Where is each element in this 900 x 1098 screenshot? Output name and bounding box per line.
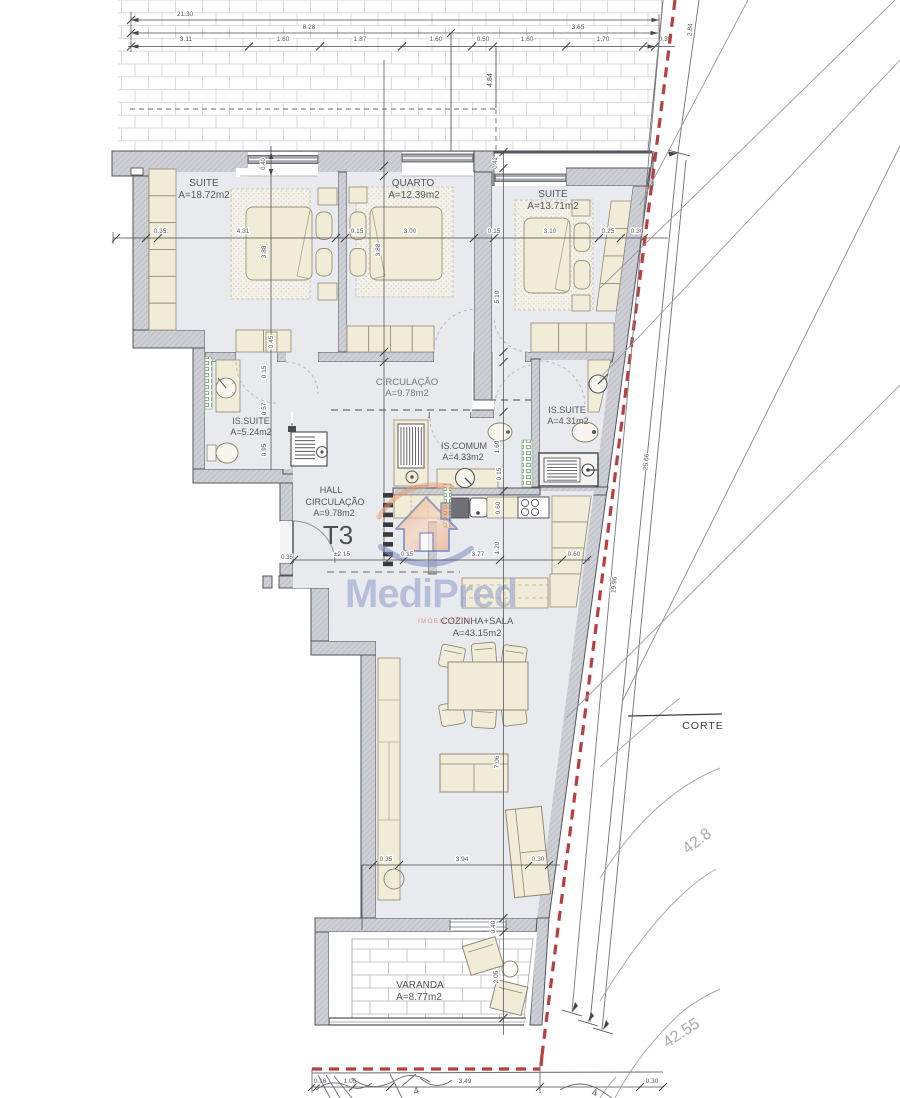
svg-text:1.60: 1.60 — [430, 36, 443, 43]
svg-text:IS.SUITE: IS.SUITE — [232, 416, 270, 426]
svg-text:VARANDA: VARANDA — [396, 980, 444, 991]
svg-text:CIRCULAÇÃO: CIRCULAÇÃO — [376, 377, 438, 388]
svg-text:A=8.77m2: A=8.77m2 — [396, 992, 442, 1003]
svg-text:7.06: 7.06 — [494, 755, 501, 768]
svg-text:A=18.72m2: A=18.72m2 — [178, 190, 230, 201]
svg-text:0.40: 0.40 — [490, 920, 497, 933]
svg-text:0.15: 0.15 — [351, 228, 364, 235]
svg-text:A=4.33m2: A=4.33m2 — [442, 452, 483, 462]
svg-text:HALL: HALL — [320, 485, 343, 495]
svg-text:0.35: 0.35 — [281, 555, 293, 561]
svg-text:0.42: 0.42 — [493, 157, 499, 169]
svg-text:0.35: 0.35 — [380, 856, 393, 863]
svg-text:T3: T3 — [323, 520, 353, 550]
svg-text:A=12.39m2: A=12.39m2 — [388, 190, 440, 201]
svg-text:1.87: 1.87 — [354, 36, 367, 43]
svg-text:1.60: 1.60 — [521, 36, 534, 43]
svg-text:1.70: 1.70 — [597, 36, 610, 43]
svg-text:1.60: 1.60 — [494, 440, 501, 453]
svg-text:25.66: 25.66 — [642, 453, 650, 470]
svg-text:0.57: 0.57 — [261, 402, 268, 415]
svg-text:19.96: 19.96 — [610, 576, 618, 593]
svg-text:IMOBILIÁRIA: IMOBILIÁRIA — [418, 616, 470, 625]
svg-text:0.15: 0.15 — [496, 467, 503, 480]
svg-text:0.35: 0.35 — [154, 228, 167, 235]
svg-text:±2.15: ±2.15 — [334, 551, 351, 558]
svg-text:21.30: 21.30 — [177, 11, 194, 18]
svg-text:4.31: 4.31 — [237, 228, 250, 235]
svg-text:1.05: 1.05 — [344, 1078, 357, 1085]
svg-text:0.30: 0.30 — [646, 1078, 659, 1085]
svg-text:MediPred: MediPred — [345, 572, 517, 616]
svg-text:0.40: 0.40 — [261, 158, 267, 170]
svg-text:A=4.31m2: A=4.31m2 — [547, 416, 588, 426]
svg-text:0.15: 0.15 — [261, 365, 268, 378]
svg-text:0.15: 0.15 — [401, 551, 414, 558]
svg-text:CIRCULAÇÃO: CIRCULAÇÃO — [305, 497, 364, 507]
svg-text:3.88: 3.88 — [261, 245, 268, 258]
svg-text:3.94: 3.94 — [456, 856, 469, 863]
svg-text:IS.COMUM: IS.COMUM — [441, 441, 487, 451]
svg-text:0.30: 0.30 — [532, 856, 545, 863]
svg-text:0.60: 0.60 — [495, 501, 502, 514]
svg-text:0.15: 0.15 — [488, 228, 501, 235]
svg-text:3.65: 3.65 — [572, 24, 585, 31]
svg-text:IS.SUITE: IS.SUITE — [548, 405, 586, 415]
svg-text:1.20: 1.20 — [494, 541, 501, 554]
svg-text:3.11: 3.11 — [180, 36, 193, 43]
svg-text:3.88: 3.88 — [375, 243, 382, 256]
svg-text:0.95: 0.95 — [261, 443, 268, 456]
svg-text:SUITE: SUITE — [189, 178, 219, 189]
svg-text:8.28: 8.28 — [303, 24, 316, 31]
svg-text:3.49: 3.49 — [459, 1078, 472, 1085]
svg-text:0.25: 0.25 — [602, 228, 615, 235]
svg-text:1.60: 1.60 — [277, 36, 290, 43]
svg-text:A=9.78m2: A=9.78m2 — [385, 388, 429, 399]
svg-text:4.84: 4.84 — [487, 73, 494, 87]
svg-text:0.50: 0.50 — [477, 36, 490, 43]
svg-text:QUARTO: QUARTO — [392, 178, 435, 189]
svg-text:0.60: 0.60 — [568, 551, 581, 558]
svg-text:A=5.24m2: A=5.24m2 — [230, 427, 271, 437]
svg-text:A=43.15m2: A=43.15m2 — [453, 628, 502, 639]
svg-text:CORTE: CORTE — [682, 720, 724, 732]
svg-text:A=13.71m2: A=13.71m2 — [527, 201, 579, 212]
svg-text:0.45: 0.45 — [268, 335, 275, 348]
svg-text:2.84: 2.84 — [686, 23, 694, 37]
svg-text:2.05: 2.05 — [493, 970, 500, 983]
svg-text:3.77: 3.77 — [472, 551, 485, 558]
svg-text:A=9.78m2: A=9.78m2 — [313, 508, 354, 518]
svg-text:SUITE: SUITE — [538, 189, 568, 200]
svg-text:5.10: 5.10 — [494, 290, 501, 303]
svg-text:3.00: 3.00 — [404, 228, 417, 235]
svg-text:3.10: 3.10 — [544, 228, 557, 235]
